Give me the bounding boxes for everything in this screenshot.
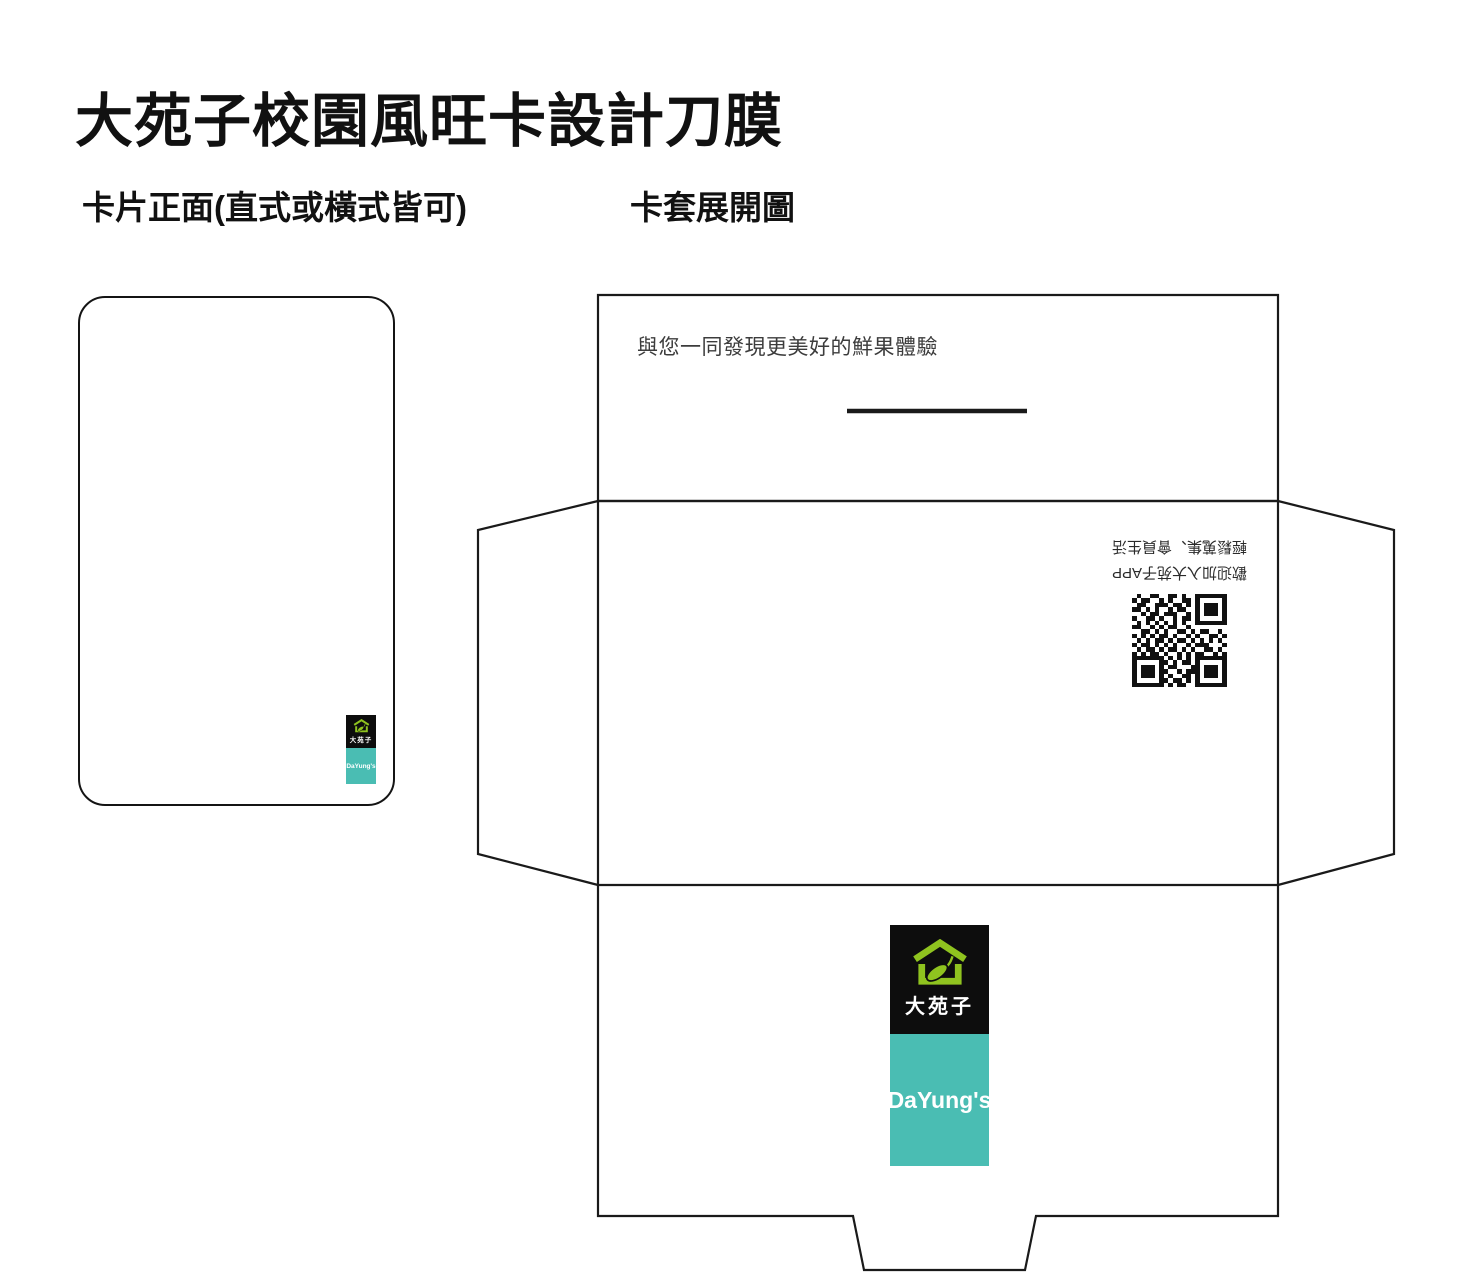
sleeve-logo: 大苑子 DaYung's: [890, 925, 989, 1166]
dieline-sheet: 大苑子校園風旺卡設計刀膜 卡片正面(直式或橫式皆可) 卡套展開圖 大苑子 DaY…: [0, 0, 1475, 1281]
app-note-rotated: 歡迎加入大苑子APP 輕鬆蒐集、會員生活: [1077, 533, 1247, 585]
qr-module: [1222, 683, 1227, 687]
sleeve-tagline: 與您一同發現更美好的鮮果體驗: [637, 331, 938, 361]
app-note-line2: 輕鬆蒐集、會員生活: [1077, 533, 1247, 559]
sleeve-left-wing: [478, 501, 598, 885]
app-qr-code: [1132, 594, 1227, 687]
sleeve-logo-black-block: 大苑子: [890, 925, 989, 1034]
sleeve-logo-name-en: DaYung's: [888, 1087, 992, 1114]
app-note-line1: 歡迎加入大苑子APP: [1077, 559, 1247, 585]
sleeve-logo-teal-block: DaYung's: [890, 1034, 989, 1166]
sleeve-dieline: [0, 0, 1475, 1281]
sleeve-right-wing: [1278, 501, 1394, 885]
house-with-leaf-icon: [911, 939, 969, 987]
sleeve-logo-name-zh: 大苑子: [905, 990, 974, 1019]
sleeve-top-flap: [598, 295, 1278, 501]
